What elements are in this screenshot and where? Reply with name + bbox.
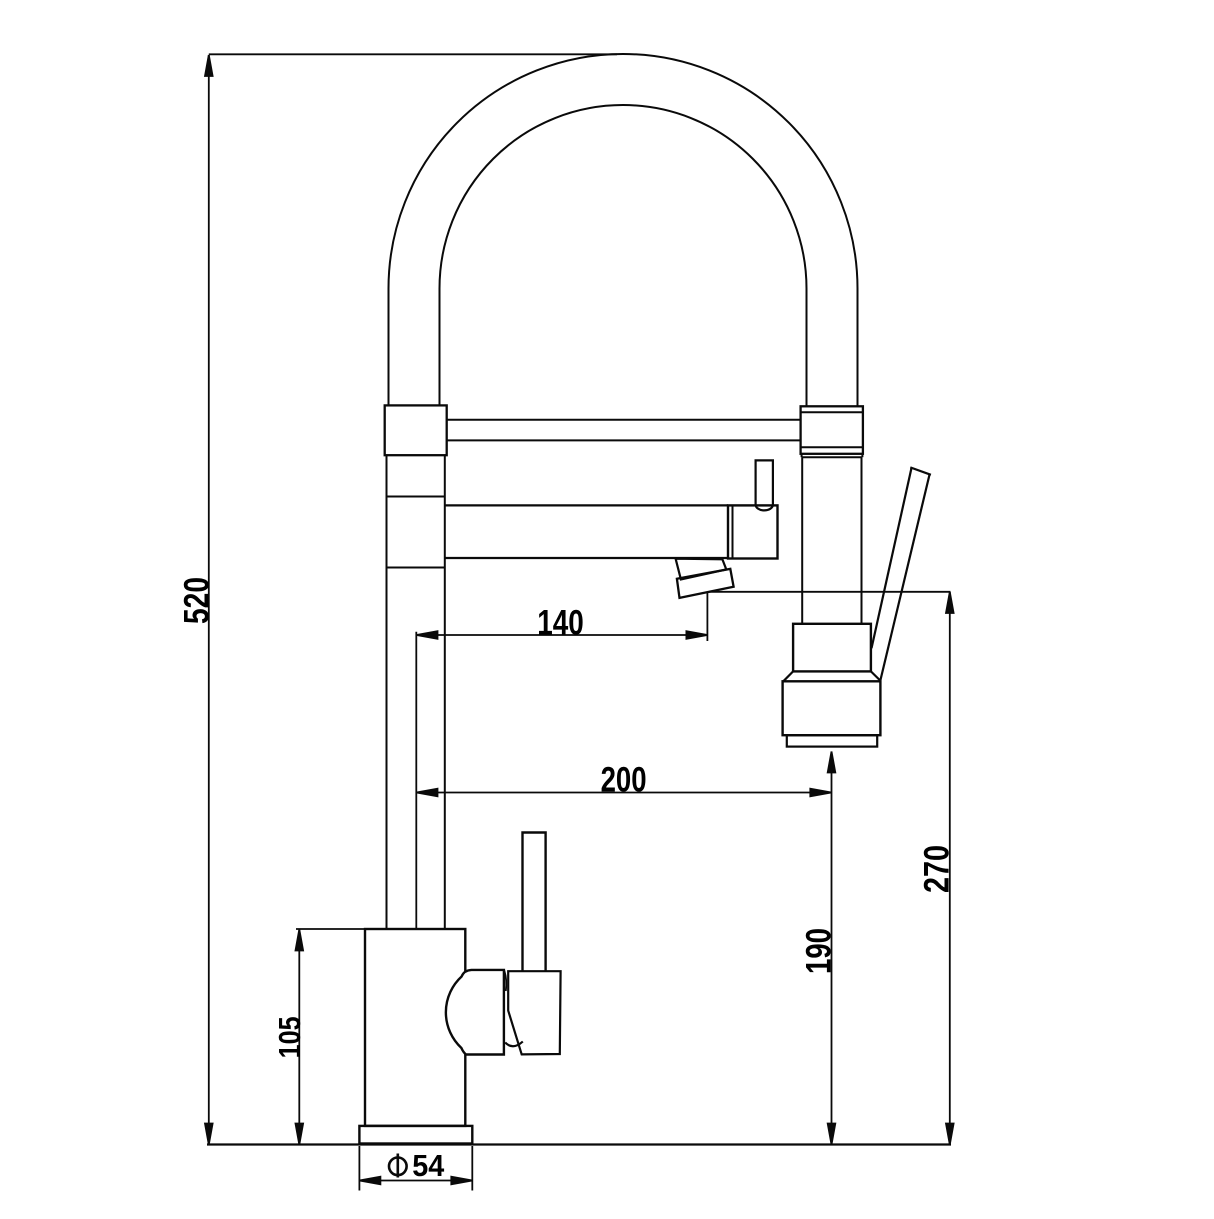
svg-text:54: 54: [412, 1148, 445, 1183]
svg-text:270: 270: [918, 845, 957, 893]
svg-text:140: 140: [537, 604, 584, 643]
svg-text:190: 190: [800, 928, 839, 974]
svg-text:520: 520: [178, 577, 217, 624]
svg-text:200: 200: [601, 761, 647, 800]
svg-text:105: 105: [272, 1016, 307, 1058]
